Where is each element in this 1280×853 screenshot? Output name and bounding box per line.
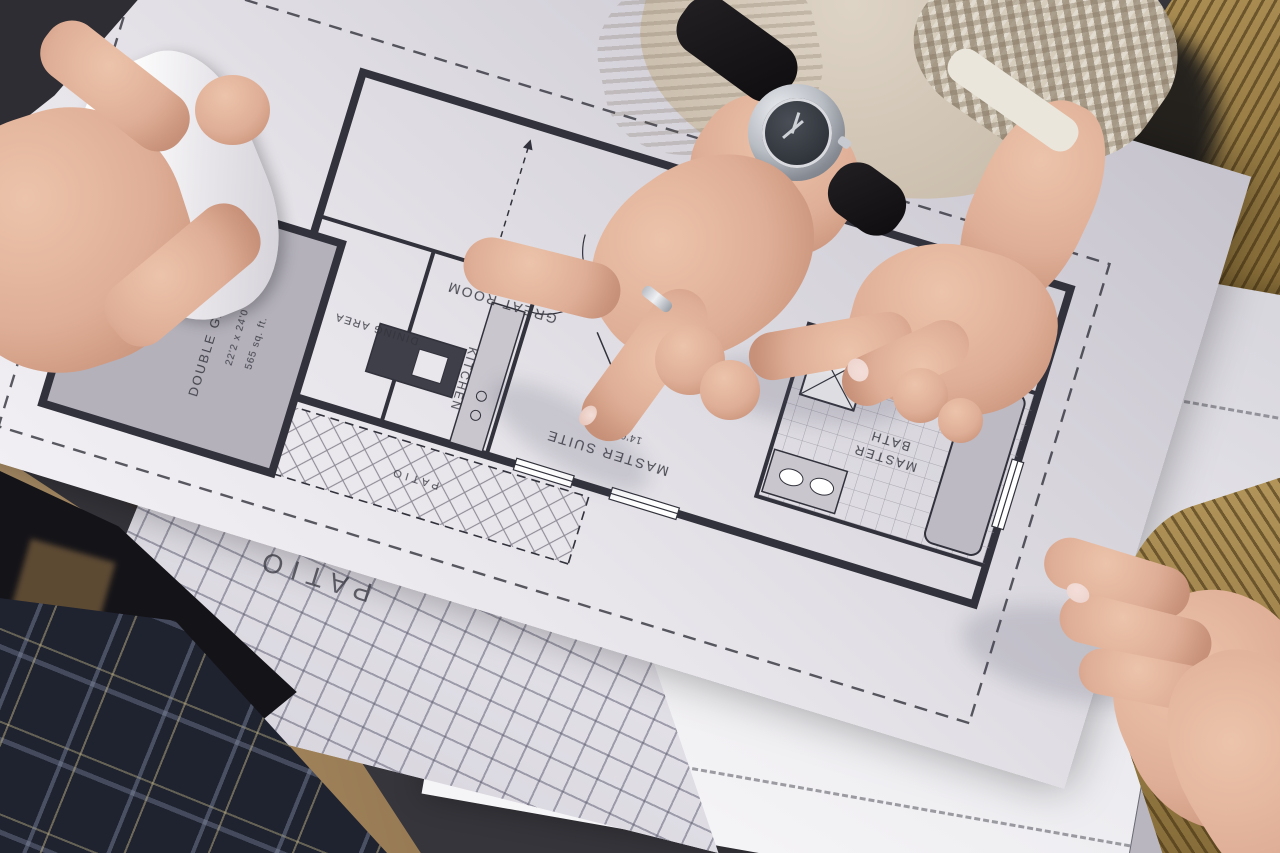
wristwatch-dial xyxy=(762,98,832,168)
photo-of-couple-reviewing-floor-plans: PATIO xyxy=(0,0,1280,853)
vault-line xyxy=(498,146,529,247)
man-knuckle xyxy=(700,360,760,420)
left-hand-fingertip xyxy=(195,75,270,145)
woman-knuckle xyxy=(938,398,983,443)
